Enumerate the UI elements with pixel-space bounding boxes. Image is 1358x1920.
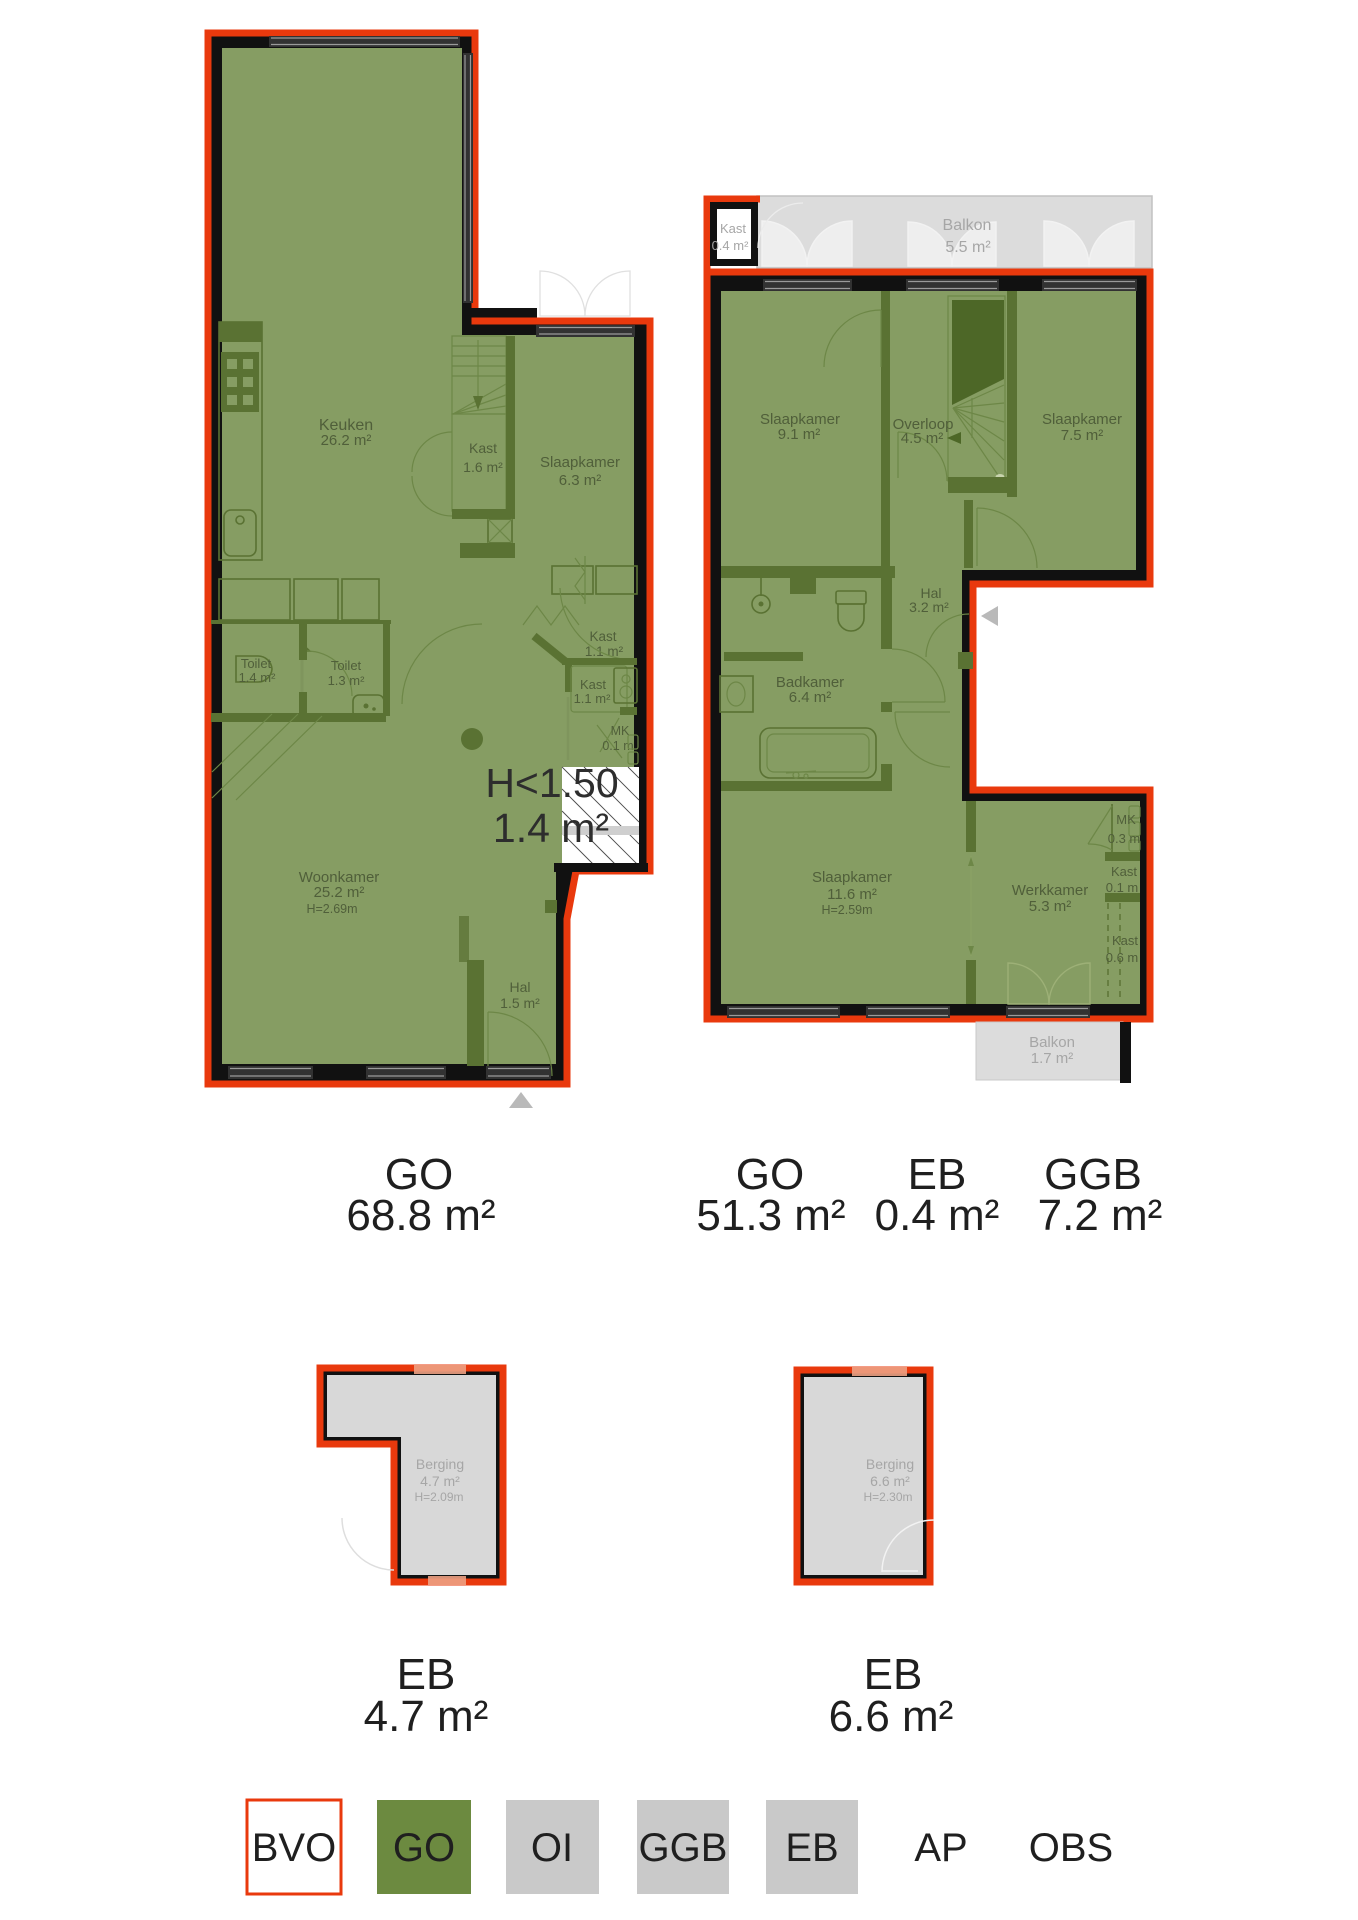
svg-text:25.2 m²: 25.2 m² [314,884,365,901]
svg-text:26.2 m²: 26.2 m² [321,432,372,449]
svg-text:1.4 m²: 1.4 m² [493,805,609,851]
svg-text:H=2.09m: H=2.09m [414,1490,463,1504]
svg-text:H=2.59m: H=2.59m [821,903,872,917]
svg-text:9.1 m²: 9.1 m² [778,426,821,443]
svg-text:1.6 m²: 1.6 m² [463,459,503,475]
svg-text:6.6 m²: 6.6 m² [870,1473,910,1489]
svg-text:Kast: Kast [580,677,606,692]
svg-text:Toilet: Toilet [331,658,362,673]
svg-text:BVO: BVO [252,1826,336,1870]
svg-text:Kast: Kast [720,221,746,236]
svg-text:68.8 m²: 68.8 m² [346,1191,495,1240]
svg-text:7.5 m²: 7.5 m² [1061,427,1104,444]
svg-text:AP: AP [914,1826,967,1870]
svg-text:11.6 m²: 11.6 m² [827,886,877,903]
svg-text:51.3 m²: 51.3 m² [696,1191,845,1240]
svg-text:Slaapkamer: Slaapkamer [812,869,892,886]
svg-text:Slaapkamer: Slaapkamer [1042,411,1122,428]
svg-text:Berging: Berging [416,1456,464,1472]
svg-text:H<1.50: H<1.50 [485,760,618,806]
svg-text:Slaapkamer: Slaapkamer [540,454,620,471]
svg-text:MK: MK [611,724,630,738]
svg-text:6.3 m²: 6.3 m² [559,472,602,489]
svg-text:Kast: Kast [469,440,497,456]
svg-text:0.1 m: 0.1 m [1106,880,1139,895]
svg-text:OI: OI [531,1826,573,1870]
svg-text:3.2 m²: 3.2 m² [909,599,949,615]
svg-text:4.7 m²: 4.7 m² [364,1692,489,1741]
svg-text:4.5 m²: 4.5 m² [901,430,944,447]
svg-text:0.3 m: 0.3 m [1108,831,1141,846]
svg-text:1.3 m²: 1.3 m² [328,673,366,688]
svg-text:0.4 m²: 0.4 m² [712,238,750,253]
svg-text:EB: EB [785,1826,838,1870]
svg-text:1.5 m²: 1.5 m² [500,995,540,1011]
svg-text:0.6 m: 0.6 m [1106,950,1139,965]
svg-text:Toilet: Toilet [241,656,272,671]
svg-text:0.1 m: 0.1 m [602,739,633,753]
svg-text:7.2 m²: 7.2 m² [1038,1191,1163,1240]
svg-text:Balkon: Balkon [943,217,992,234]
svg-text:GGB: GGB [639,1826,728,1870]
svg-text:5.3 m²: 5.3 m² [1029,898,1072,915]
svg-text:Kast: Kast [1112,933,1138,948]
svg-text:1.4 m²: 1.4 m² [239,670,277,685]
svg-text:GO: GO [393,1826,455,1870]
svg-text:6.6 m²: 6.6 m² [829,1692,954,1741]
svg-text:1.7 m²: 1.7 m² [1031,1050,1074,1067]
svg-text:H=2.30m: H=2.30m [863,1490,912,1504]
svg-text:MK: MK [1116,812,1136,827]
svg-text:Werkkamer: Werkkamer [1012,882,1088,899]
svg-text:0.4 m²: 0.4 m² [875,1191,1000,1240]
svg-text:Kast: Kast [589,629,616,644]
svg-text:H=2.69m: H=2.69m [306,902,357,916]
svg-text:Hal: Hal [509,979,530,995]
svg-text:Kast: Kast [1111,864,1137,879]
svg-text:Berging: Berging [866,1456,914,1472]
svg-text:4.7 m²: 4.7 m² [420,1473,460,1489]
svg-text:6.4 m²: 6.4 m² [789,689,832,706]
svg-text:1.1 m²: 1.1 m² [574,691,612,706]
svg-text:Balkon: Balkon [1029,1034,1075,1051]
svg-text:OBS: OBS [1029,1826,1113,1870]
svg-text:5.5 m²: 5.5 m² [945,239,991,256]
